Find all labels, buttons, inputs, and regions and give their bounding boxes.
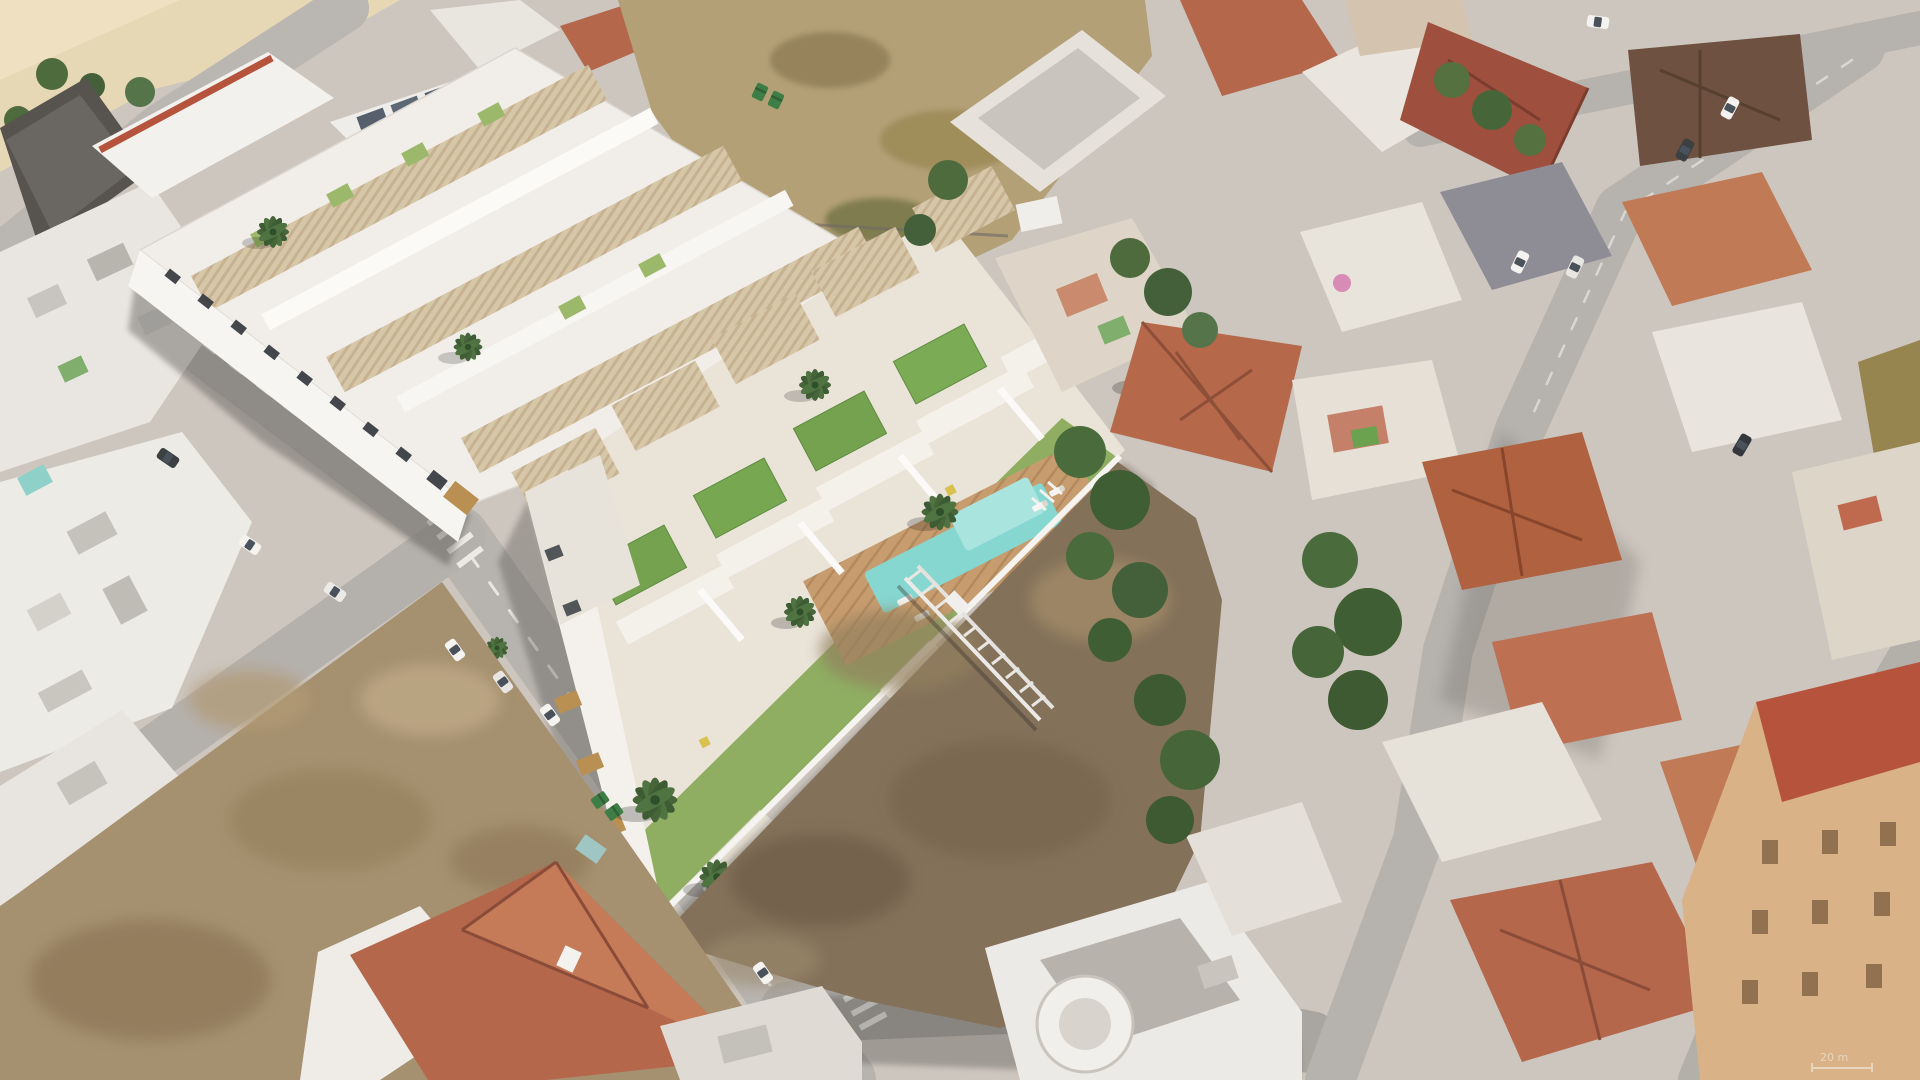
pink-umbrella (1333, 274, 1351, 292)
aerial-render-image: 20 m (0, 0, 1920, 1080)
scale-label: 20 m (1820, 1051, 1848, 1064)
scene-canvas: 20 m (0, 0, 1920, 1080)
